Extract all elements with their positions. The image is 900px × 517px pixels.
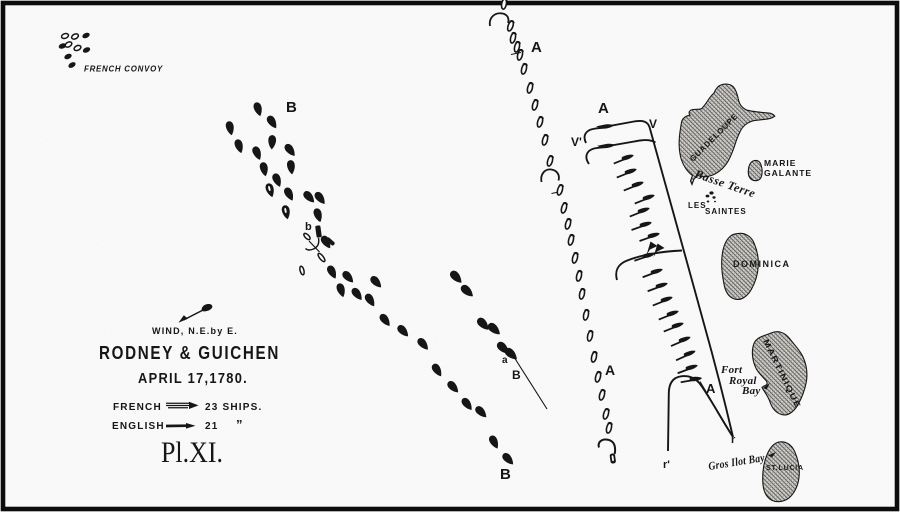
svg-text:FRENCH: FRENCH — [113, 402, 162, 413]
svg-text:b: b — [305, 221, 312, 233]
svg-text:V: V — [649, 117, 657, 131]
svg-text:Pl.XI.: Pl.XI. — [161, 436, 223, 469]
svg-text:B: B — [512, 368, 521, 382]
svg-text:ST.LUCIA: ST.LUCIA — [766, 465, 804, 472]
svg-text:”: ” — [236, 417, 243, 432]
svg-text:A: A — [531, 39, 542, 56]
svg-text:a: a — [502, 355, 508, 366]
svg-text:A: A — [605, 362, 615, 378]
svg-text:MARIE: MARIE — [764, 158, 796, 168]
svg-text:21: 21 — [205, 421, 219, 432]
svg-text:FRENCH CONVOY: FRENCH CONVOY — [84, 64, 164, 74]
svg-text:A: A — [706, 381, 716, 396]
svg-text:LES: LES — [688, 201, 707, 210]
svg-text:DOMINICA: DOMINICA — [733, 259, 791, 269]
svg-text:B: B — [286, 99, 297, 116]
svg-text:ENGLISH: ENGLISH — [112, 421, 165, 432]
svg-text:r: r — [731, 434, 736, 446]
svg-text:APRIL 17,1780.: APRIL 17,1780. — [138, 370, 248, 387]
svg-text:A: A — [598, 100, 609, 117]
svg-text:B: B — [500, 466, 511, 483]
svg-text:Bay: Bay — [741, 385, 761, 397]
svg-text:23 SHIPS.: 23 SHIPS. — [205, 402, 263, 413]
svg-text:V': V' — [571, 135, 582, 149]
svg-text:r': r' — [663, 459, 670, 471]
svg-text:GALANTE: GALANTE — [764, 168, 812, 178]
svg-text:SAINTES: SAINTES — [705, 207, 747, 216]
svg-text:RODNEY & GUICHEN: RODNEY & GUICHEN — [99, 343, 280, 363]
svg-text:WIND, N.E.by E.: WIND, N.E.by E. — [152, 326, 238, 336]
